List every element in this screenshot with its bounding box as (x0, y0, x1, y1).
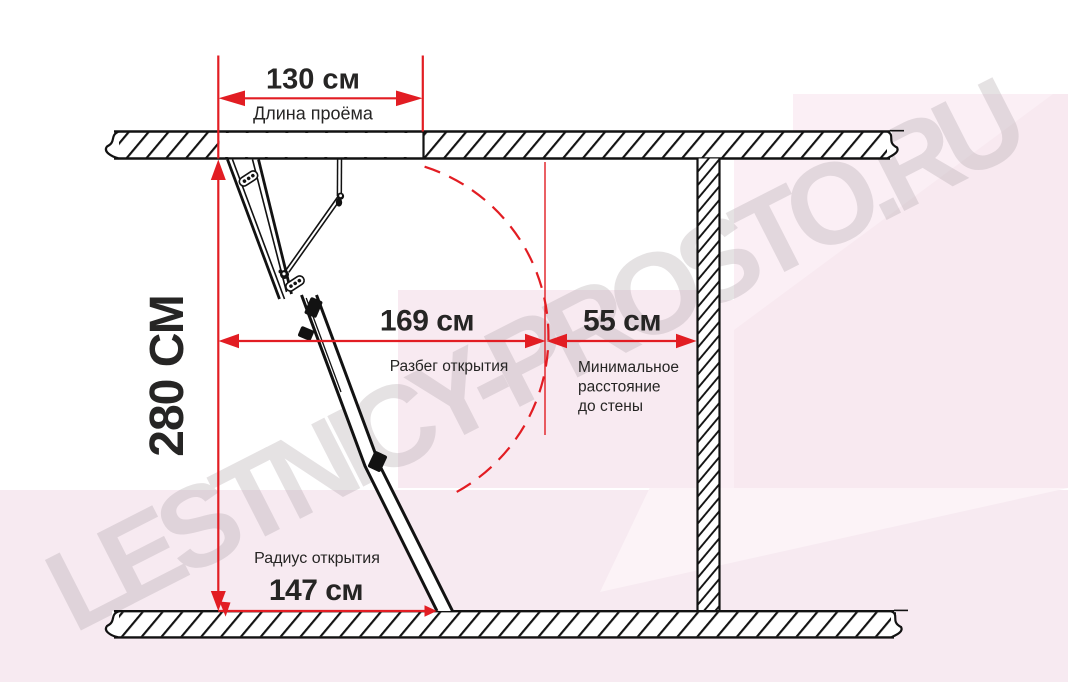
svg-text:Минимальное: Минимальное (578, 359, 679, 376)
svg-text:55 см: 55 см (583, 305, 661, 338)
svg-text:Разбег открытия: Разбег открытия (390, 358, 509, 375)
svg-text:280 СМ: 280 СМ (141, 295, 194, 456)
svg-text:147 см: 147 см (269, 574, 363, 607)
svg-text:до стены: до стены (578, 398, 643, 415)
svg-text:Радиус открытия: Радиус открытия (254, 550, 380, 567)
svg-text:расстояние: расстояние (578, 379, 661, 396)
svg-text:169 см: 169 см (380, 305, 474, 338)
svg-text:Длина проёма: Длина проёма (253, 104, 374, 124)
svg-text:130 см: 130 см (266, 64, 360, 96)
